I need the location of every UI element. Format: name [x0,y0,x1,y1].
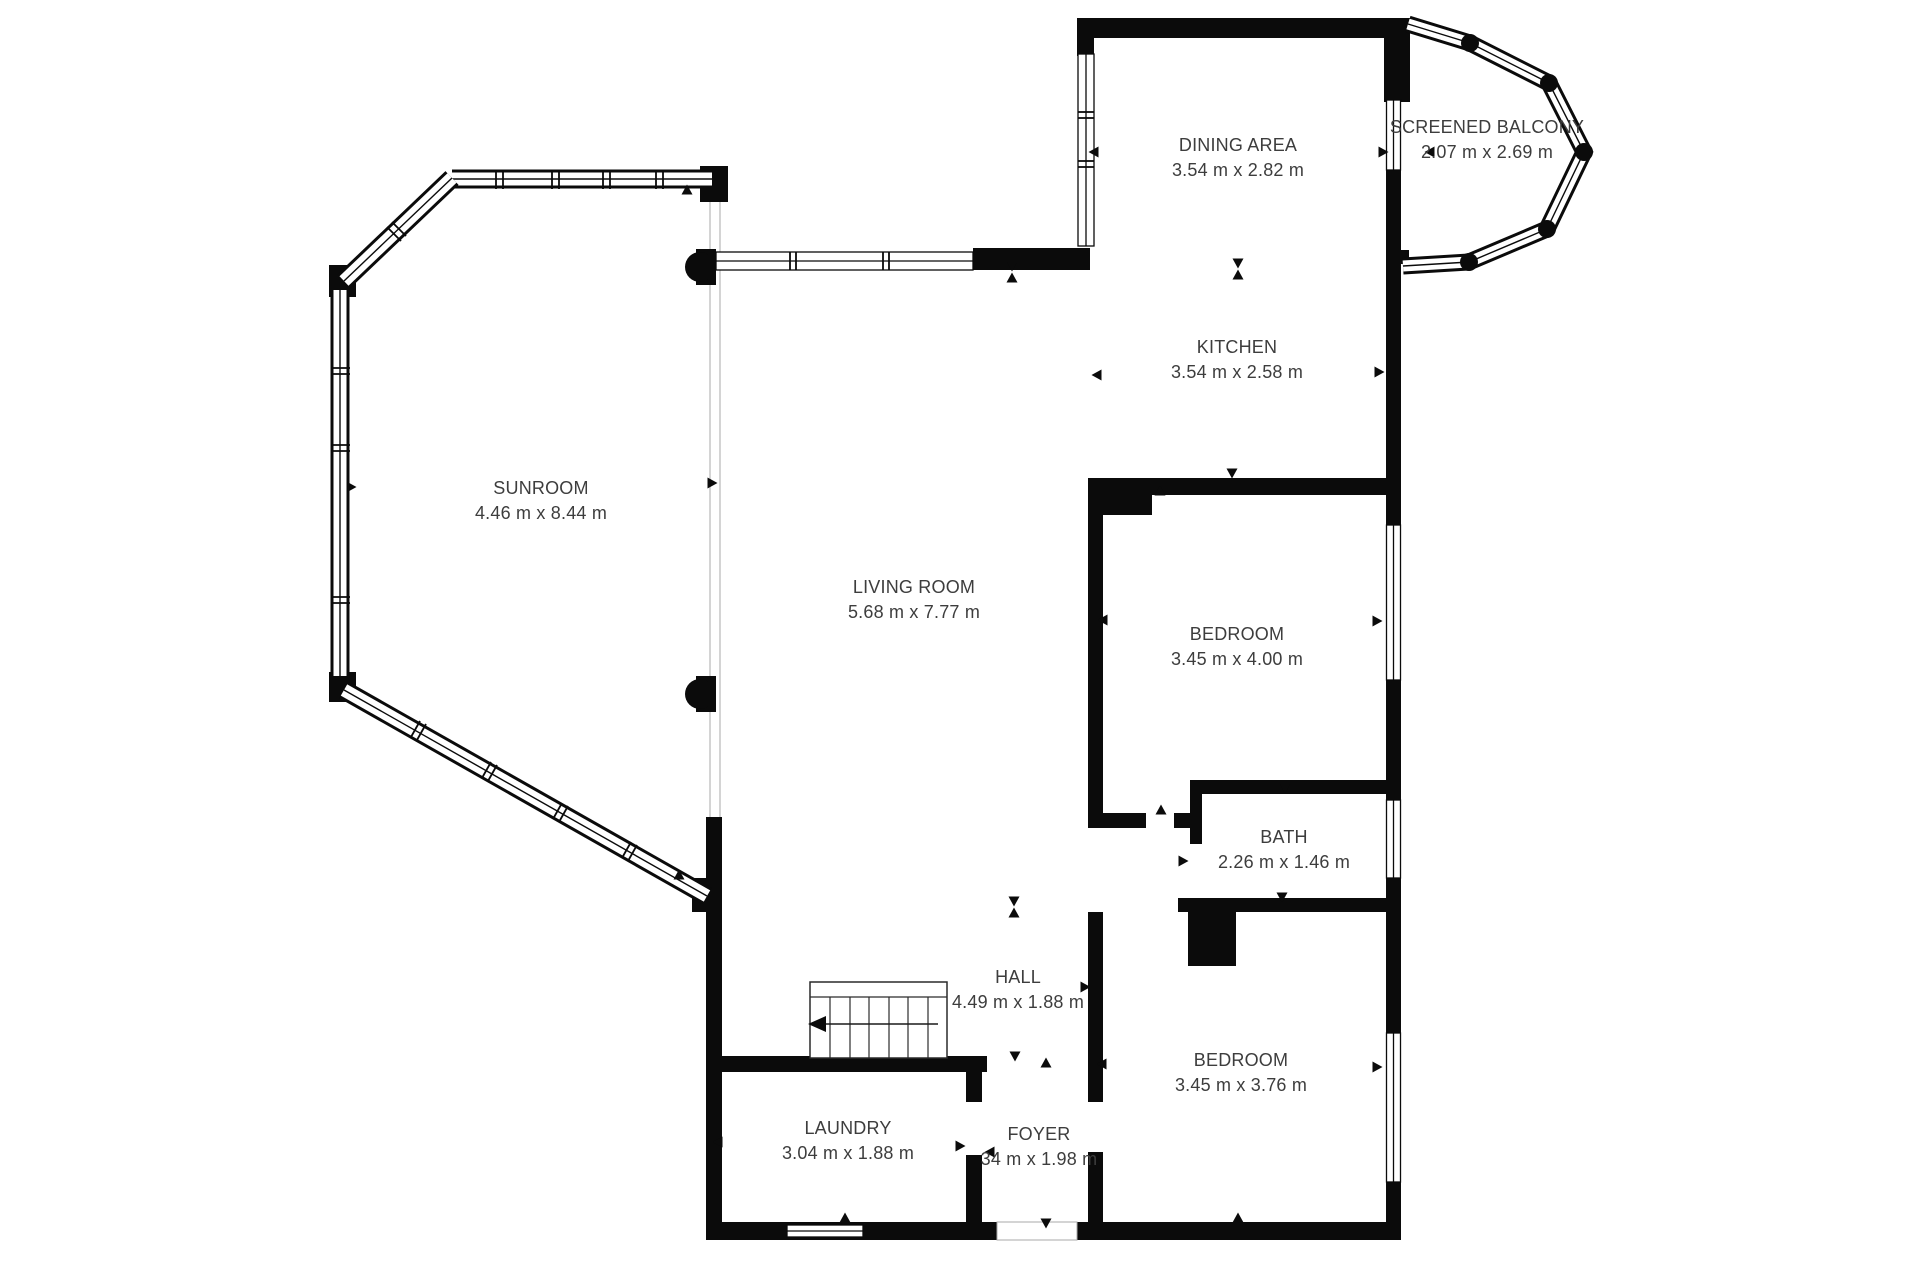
room-label-dining-area: DINING AREA 3.54 m x 2.82 m [1172,133,1304,183]
room-label-hall: HALL 4.49 m x 1.88 m [952,965,1084,1015]
room-dims: 2.26 m x 1.46 m [1218,850,1350,875]
wall-segment [1190,794,1202,844]
room-dims: 5.68 m x 7.77 m [848,600,980,625]
room-dims: 3.45 m x 4.00 m [1171,647,1303,672]
room-dims: 3.04 m x 1.88 m [782,1141,914,1166]
room-dims: 34 m x 1.98 m [981,1147,1098,1172]
living-room-top-window [716,252,973,270]
chimney-block [1188,912,1236,966]
wall-segment [1178,898,1401,912]
room-label-bedroom-1: BEDROOM 3.45 m x 4.00 m [1171,622,1303,672]
room-name: KITCHEN [1197,335,1277,360]
room-name: FOYER [1007,1122,1070,1147]
wall-segment [966,1072,982,1102]
wall-segment [1088,813,1146,828]
room-dims: 3.45 m x 3.76 m [1175,1073,1307,1098]
room-name: LAUNDRY [804,1116,891,1141]
dining-window-wall [1078,54,1094,246]
room-dims: 3.54 m x 2.58 m [1171,360,1303,385]
room-label-sunroom: SUNROOM 4.46 m x 8.44 m [475,476,607,526]
room-label-kitchen: KITCHEN 3.54 m x 2.58 m [1171,335,1303,385]
staircase [808,982,947,1058]
wall-segment [973,248,1090,270]
wall-segment [1088,478,1401,495]
floor-plan-page: SUNROOM 4.46 m x 8.44 m LIVING ROOM 5.68… [0,0,1920,1280]
room-name: SUNROOM [493,476,588,501]
round-column [685,252,715,282]
room-label-living-room: LIVING ROOM 5.68 m x 7.77 m [848,575,980,625]
room-label-foyer: FOYER 34 m x 1.98 m [981,1122,1098,1172]
room-name: BEDROOM [1190,622,1284,647]
round-column [685,679,715,709]
wall-segment [1088,478,1103,828]
room-name: BEDROOM [1194,1048,1288,1073]
plan-background [0,0,1920,1280]
room-name: SCREENED BALCONY [1390,115,1584,140]
room-dims: 4.49 m x 1.88 m [952,990,1084,1015]
wall-segment [1095,495,1152,515]
room-name: DINING AREA [1179,133,1297,158]
room-name: BATH [1260,825,1307,850]
room-dims: 2.07 m x 2.69 m [1421,140,1553,165]
wall-segment [1088,912,1103,1102]
room-name: LIVING ROOM [853,575,975,600]
wall-segment [1190,780,1401,794]
room-name: HALL [995,965,1041,990]
room-label-laundry: LAUNDRY 3.04 m x 1.88 m [782,1116,914,1166]
room-dims: 4.46 m x 8.44 m [475,501,607,526]
room-label-bedroom-2: BEDROOM 3.45 m x 3.76 m [1175,1048,1307,1098]
room-label-bath: BATH 2.26 m x 1.46 m [1218,825,1350,875]
room-label-screened-balcony: SCREENED BALCONY 2.07 m x 2.69 m [1390,115,1584,165]
room-dims: 3.54 m x 2.82 m [1172,158,1304,183]
entry-opening [997,1222,1077,1240]
wall-segment [1077,1222,1401,1240]
wall-segment [1077,18,1408,38]
wall-segment [1077,18,1094,56]
floor-plan-svg [0,0,1920,1280]
